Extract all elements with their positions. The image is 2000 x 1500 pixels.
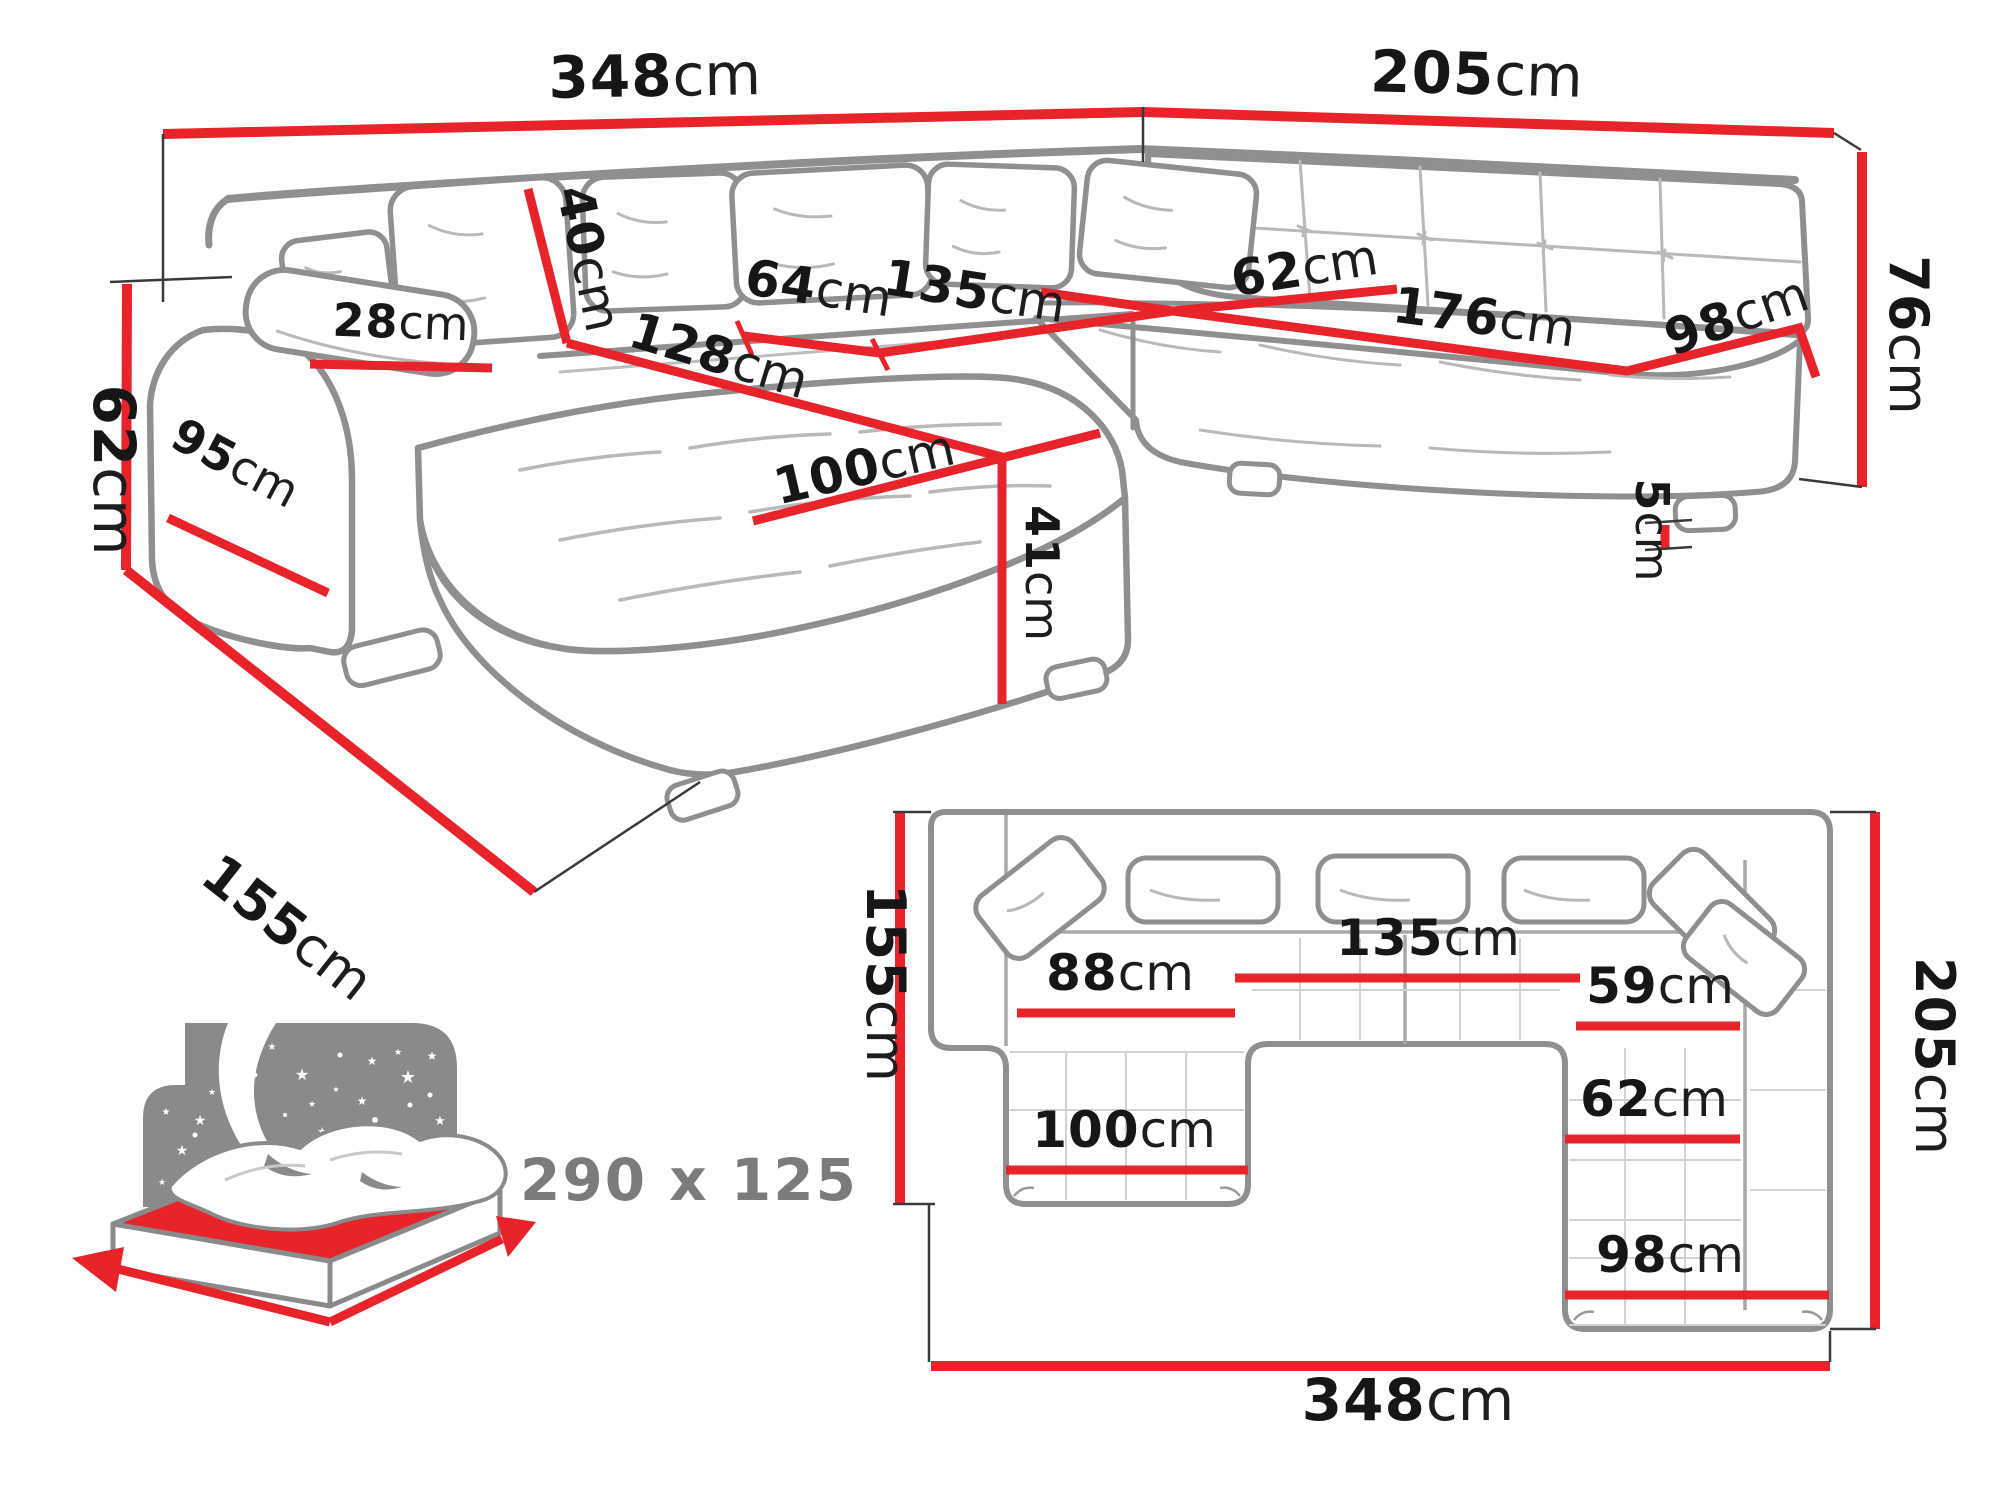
ext-line	[1799, 479, 1862, 487]
pillow-icon	[1128, 858, 1278, 922]
svg-text:★: ★	[240, 1094, 256, 1115]
svg-text:★: ★	[427, 1049, 438, 1063]
label-76cm: 76cm	[1877, 255, 1940, 414]
ext-line	[110, 277, 232, 282]
label-155cm: 155cm	[190, 842, 385, 1014]
left-arm-foot	[341, 627, 444, 689]
perspective-sofa-drawing	[150, 149, 1808, 824]
svg-text:★: ★	[308, 1100, 316, 1110]
label-98cm-plan: 98cm	[1596, 1226, 1744, 1284]
svg-text:★: ★	[232, 1054, 243, 1068]
label-59cm: 59cm	[1586, 957, 1734, 1015]
sofa-dimension-diagram: 348cm 205cm 62cm 155cm 76cm 40cm 28cm 95…	[0, 0, 2000, 1500]
ext-line	[1834, 133, 1861, 150]
sofa-back-left-corner	[209, 199, 228, 245]
dim-line-348	[163, 112, 1143, 134]
svg-text:★: ★	[176, 1143, 189, 1159]
label-88cm: 88cm	[1046, 944, 1194, 1002]
svg-text:★: ★	[194, 1113, 207, 1129]
label-205cm: 205cm	[1369, 37, 1583, 111]
svg-text:★: ★	[268, 1042, 277, 1053]
svg-text:★: ★	[295, 1065, 309, 1084]
label-135cm-plan: 135cm	[1336, 909, 1520, 967]
label-28cm: 28cm	[332, 293, 470, 352]
label-205cm-plan: 205cm	[1903, 957, 1966, 1155]
svg-text:★: ★	[158, 1178, 166, 1188]
svg-text:★: ★	[400, 1067, 416, 1088]
label-100cm-plan: 100cm	[1032, 1101, 1216, 1159]
label-5cm: 5cm	[1625, 478, 1679, 581]
label-348cm: 348cm	[548, 40, 762, 112]
plan-view: 155cm 205cm 348cm 88cm 135cm 59cm 62cm 1…	[854, 812, 1966, 1434]
label-155cm-plan: 155cm	[854, 884, 917, 1082]
label-62cm-plan: 62cm	[1580, 1070, 1728, 1128]
sleeping-function-icon: ★★ ★★ ★★ ★★ ★★ ★★ ★★ ★★ ★★ ★★ ★★ ★★ ★★ ★…	[72, 1023, 858, 1322]
dim-line-205	[1143, 112, 1834, 133]
svg-text:★: ★	[357, 1094, 368, 1108]
svg-text:★: ★	[162, 1107, 171, 1118]
svg-text:★: ★	[332, 1085, 339, 1094]
label-62cm-left: 62cm	[80, 384, 148, 555]
label-41cm: 41cm	[1015, 505, 1069, 641]
dim-line-28	[310, 364, 492, 368]
pillow-icon	[1504, 858, 1644, 922]
label-348cm-plan: 348cm	[1302, 1366, 1514, 1434]
ext-line	[534, 782, 700, 892]
svg-text:★: ★	[208, 1088, 216, 1098]
svg-text:★: ★	[367, 1054, 378, 1068]
svg-text:★: ★	[394, 1048, 402, 1058]
svg-text:★: ★	[434, 1114, 446, 1129]
sleeping-area-label: 290 x 125	[520, 1146, 858, 1214]
